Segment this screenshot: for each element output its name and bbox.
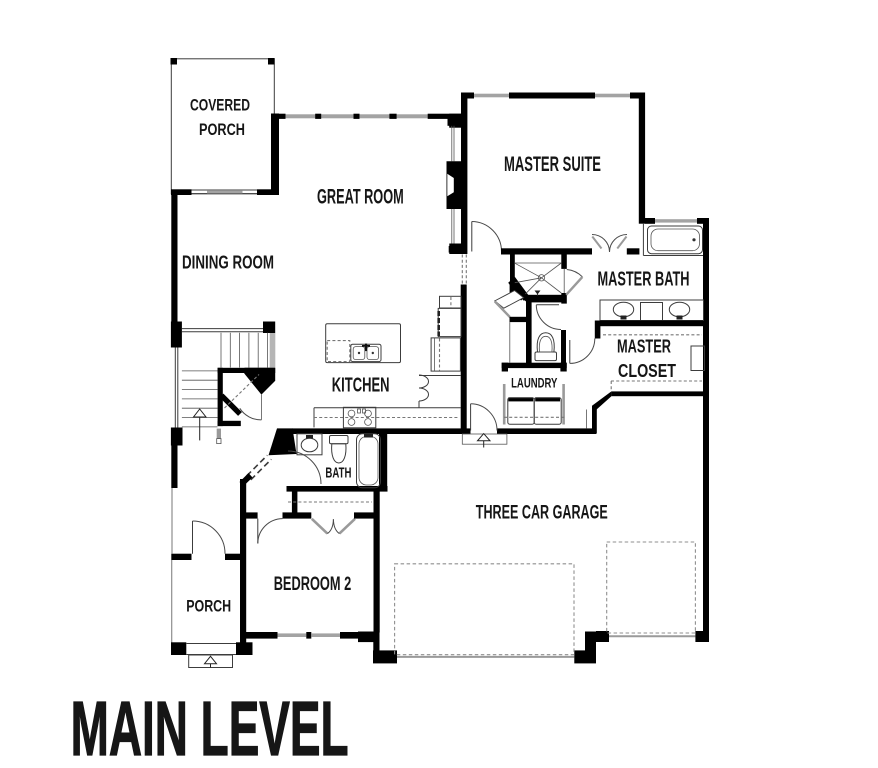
svg-text:PORCH: PORCH bbox=[199, 120, 245, 139]
svg-text:GREAT ROOM: GREAT ROOM bbox=[317, 185, 404, 209]
svg-text:LAUNDRY: LAUNDRY bbox=[511, 375, 558, 391]
svg-text:BEDROOM 2: BEDROOM 2 bbox=[274, 574, 352, 595]
svg-text:MASTER SUITE: MASTER SUITE bbox=[504, 153, 601, 176]
svg-text:MASTER BATH: MASTER BATH bbox=[598, 269, 690, 291]
svg-text:MASTER: MASTER bbox=[617, 336, 671, 357]
svg-text:CLOSET: CLOSET bbox=[618, 360, 677, 381]
svg-text:COVERED: COVERED bbox=[190, 96, 250, 115]
svg-text:MAIN LEVEL: MAIN LEVEL bbox=[71, 686, 349, 768]
svg-text:THREE CAR GARAGE: THREE CAR GARAGE bbox=[476, 502, 608, 524]
svg-text:KITCHEN: KITCHEN bbox=[332, 375, 390, 397]
svg-text:DINING ROOM: DINING ROOM bbox=[182, 252, 274, 273]
svg-text:BATH: BATH bbox=[325, 464, 351, 481]
svg-text:PORCH: PORCH bbox=[186, 597, 231, 616]
